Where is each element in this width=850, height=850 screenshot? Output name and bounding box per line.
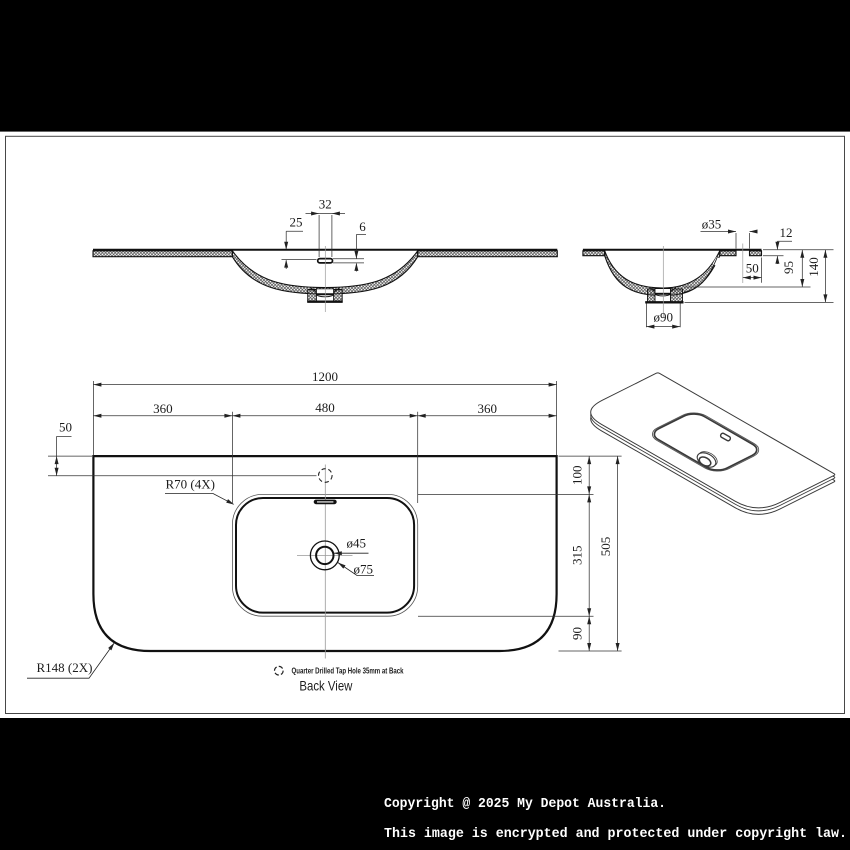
svg-text:25: 25 bbox=[290, 215, 303, 230]
svg-text:505: 505 bbox=[598, 537, 613, 557]
svg-text:12: 12 bbox=[780, 225, 793, 240]
svg-text:ø75: ø75 bbox=[354, 561, 374, 576]
svg-text:This image is encrypted and pr: This image is encrypted and protected un… bbox=[384, 826, 847, 842]
svg-text:100: 100 bbox=[570, 466, 585, 486]
svg-text:R70 (4X): R70 (4X) bbox=[166, 477, 215, 492]
svg-text:140: 140 bbox=[806, 257, 821, 277]
svg-text:360: 360 bbox=[153, 401, 173, 416]
svg-text:50: 50 bbox=[746, 261, 759, 276]
svg-text:90: 90 bbox=[570, 627, 585, 640]
svg-text:ø45: ø45 bbox=[347, 536, 367, 551]
svg-text:6: 6 bbox=[359, 219, 366, 234]
svg-text:Quarter Drilled Tap Hole 35mm: Quarter Drilled Tap Hole 35mm at Back bbox=[292, 667, 404, 676]
svg-text:R148 (2X): R148 (2X) bbox=[37, 660, 93, 675]
svg-text:Back View: Back View bbox=[299, 678, 353, 694]
svg-text:1200: 1200 bbox=[312, 369, 338, 384]
svg-text:95: 95 bbox=[781, 261, 796, 274]
svg-text:360: 360 bbox=[477, 401, 497, 416]
svg-text:315: 315 bbox=[570, 546, 585, 566]
svg-text:Copyright @ 2025 My Depot Aust: Copyright @ 2025 My Depot Australia. bbox=[384, 796, 666, 812]
svg-text:32: 32 bbox=[319, 196, 332, 211]
svg-text:ø90: ø90 bbox=[654, 309, 674, 324]
svg-text:ø35: ø35 bbox=[702, 217, 722, 232]
svg-text:50: 50 bbox=[59, 420, 72, 435]
svg-text:480: 480 bbox=[315, 400, 335, 415]
